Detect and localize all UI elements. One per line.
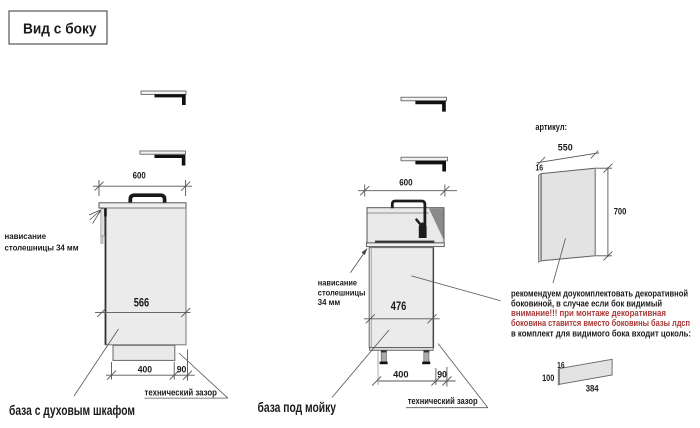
svg-text:база с духовым шкафом: база с духовым шкафом — [9, 403, 135, 418]
svg-text:нависание: нависание — [5, 232, 47, 241]
svg-text:476: 476 — [391, 299, 407, 313]
svg-text:в комплект для видимого бока в: в комплект для видимого бока входит цоко… — [511, 329, 691, 339]
svg-text:600: 600 — [399, 178, 413, 188]
svg-text:артикул:: артикул: — [535, 122, 567, 133]
svg-text:нависание: нависание — [318, 279, 358, 288]
svg-text:384: 384 — [586, 384, 599, 394]
svg-text:технический зазор: технический зазор — [408, 396, 478, 406]
svg-text:столешницы 34 мм: столешницы 34 мм — [5, 244, 79, 253]
svg-text:700: 700 — [614, 207, 627, 218]
svg-text:столешницы: столешницы — [318, 289, 366, 298]
svg-text:16: 16 — [535, 163, 543, 173]
svg-text:внимание!!! при монтаже декора: внимание!!! при монтаже декоративная — [511, 308, 666, 318]
svg-text:600: 600 — [133, 171, 146, 181]
svg-text:90: 90 — [177, 365, 187, 375]
svg-text:база под мойку: база под мойку — [258, 400, 337, 415]
svg-text:566: 566 — [134, 296, 150, 310]
svg-text:боковина ставится вместо боков: боковина ставится вместо боковины базы л… — [511, 318, 690, 328]
svg-text:технический зазор: технический зазор — [145, 388, 218, 398]
svg-text:16: 16 — [557, 360, 565, 370]
svg-text:400: 400 — [393, 370, 409, 380]
svg-text:400: 400 — [138, 365, 152, 375]
svg-text:Вид с боку: Вид с боку — [23, 22, 97, 38]
svg-text:550: 550 — [558, 143, 573, 154]
svg-text:рекомендуем доукомплектовать д: рекомендуем доукомплектовать декоративно… — [511, 289, 688, 299]
svg-text:90: 90 — [437, 370, 447, 380]
svg-text:боковиной, в случае если бок в: боковиной, в случае если бок видимый — [511, 298, 662, 308]
svg-text:100: 100 — [542, 373, 554, 383]
svg-text:34 мм: 34 мм — [318, 298, 340, 307]
